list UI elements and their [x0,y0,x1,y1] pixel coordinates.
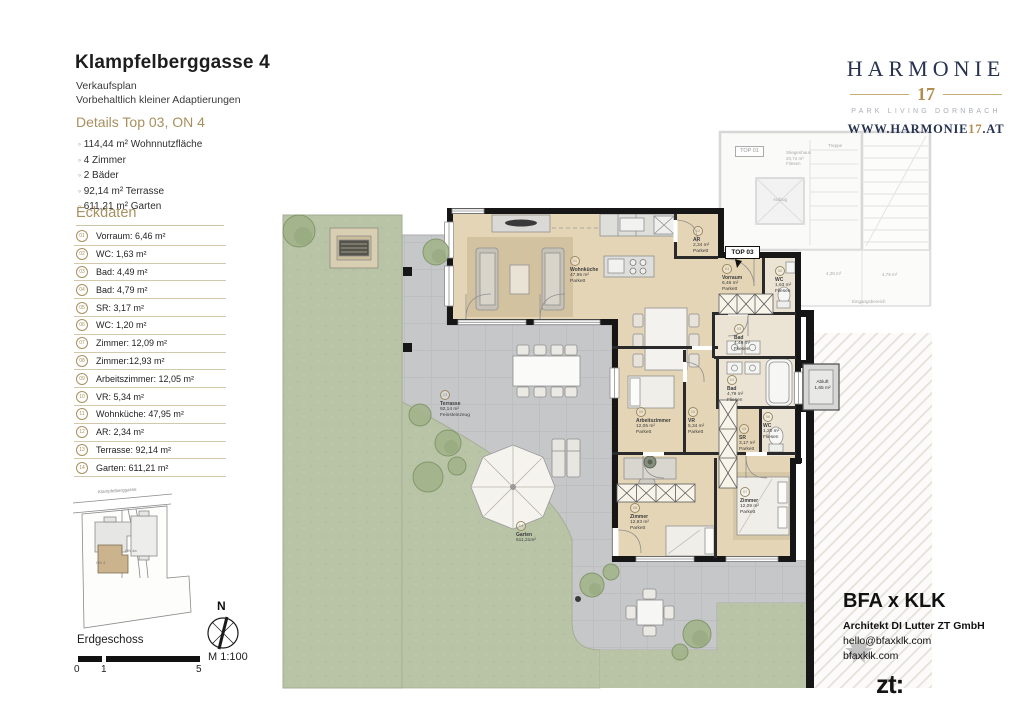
room-number-badge: 11 [570,256,580,266]
website-number: 17 [968,122,982,136]
eckdaten-label: Bad: 4,49 m² [96,267,148,277]
website-prefix: WWW.HARMONIE [848,122,969,136]
room-label-garten: 14 Garten 611,21m² [516,521,562,544]
room-floor: Parkett [693,249,739,255]
room-number-badge: 05 [76,302,88,314]
room-number-badge: 03 [76,266,88,278]
room-number-badge: 07 [76,337,88,349]
room-floor: Feinsteinzeug [440,413,486,419]
room-number-badge: 07 [740,487,750,497]
eckdaten-label: Arbeitszimmer: 12,05 m² [96,374,194,384]
room-number-badge: 06 [76,319,88,331]
room-label-wohnkueche: 11 Wohnküche 47,95 m² Parkett [570,256,616,285]
room-floor: Parkett [636,430,682,436]
eckdaten-label: SR: 3,17 m² [96,303,144,313]
stiegenhaus-floor: Fliesen [786,161,826,167]
aufzug-label: Aufzug [767,197,793,203]
room-number-badge: 05 [739,424,749,434]
eckdaten-label: Terrasse: 92,14 m² [96,445,171,455]
room-number-badge: 04 [76,284,88,296]
room-number-badge: 01 [722,264,732,274]
abluft-area: 1,65 m² [806,386,839,392]
room-number-badge: 01 [76,230,88,242]
architect-firm: Architekt DI Lutter ZT GmbH [843,620,1021,632]
architect-block: BFA x KLK Architekt DI Lutter ZT GmbH he… [843,590,1021,700]
details-item: 92,14 m² Terrasse [78,184,202,200]
brand-logo: HARMONIE 17 PARK LIVING DORNBACH WWW.HAR… [840,56,1012,137]
north-label: N [217,599,226,613]
gold-rule-left [850,94,909,95]
room-floor: Parkett [740,510,786,516]
details-list: 114,44 m² Wohnnutzfläche 4 Zimmer 2 Bäde… [78,137,202,215]
north-compass [208,617,238,649]
eckdaten-row: 10VR: 5,34 m² [74,388,226,406]
eckdaten-label: Wohnküche: 47,95 m² [96,409,184,419]
room-label-wc1: 02 WC 1,63 m² Fliesen [775,266,821,295]
room-number-badge: 06 [763,412,773,422]
room-floor: Fliesen [734,347,780,353]
brand-number: 17 [917,84,935,105]
room-label-zimmer1: 07 Zimmer 12,09 m² Parkett [740,487,786,516]
eckdaten-row: 01Vorraum: 6,46 m² [74,228,226,246]
room-floor: Fliesen [763,435,809,441]
verkaufsplan-page: Klampfelberggasse 4 Verkaufsplan Vorbeha… [0,0,1024,724]
room-area: 611,21m² [516,538,562,544]
brand-number-row: 17 [840,84,1012,105]
architect-name: BFA x KLK [843,590,1021,613]
scale-mark-0: 0 [74,664,80,675]
eckdaten-label: WC: 1,20 m² [96,320,147,330]
eckdaten-row: 11Wohnküche: 47,95 m² [74,406,226,424]
room-number-badge: 13 [76,444,88,456]
building-label-on4: ON 4 [96,560,105,565]
room-label-arbeitszimmer: 09 Arbeitszimmer 12,05 m² Parkett [636,407,682,436]
eckdaten-row: 13Terrasse: 92,14 m² [74,442,226,460]
eckdaten-label: VR: 5,34 m² [96,392,144,402]
room-number-badge: 03 [734,324,744,334]
eckdaten-label: Zimmer:12,93 m² [96,356,165,366]
brand-website: WWW.HARMONIE17.AT [840,122,1012,137]
room-number-badge: 11 [76,408,88,420]
stiegenhaus-label: Stiegenhaus 20,74 m² Fliesen [786,150,826,167]
room-label-zimmer2: 08 Zimmer 12,93 m² Parkett [630,503,676,532]
eckdaten-row: 03Bad: 4,49 m² [74,264,226,282]
architect-email: hello@bfaxklk.com [843,635,1021,647]
eckdaten-row: 02WC: 1,63 m² [74,246,226,264]
eckdaten-label: Bad: 4,79 m² [96,285,148,295]
eckdaten-row: 08Zimmer:12,93 m² [74,353,226,371]
room-label-vr: 10 VR 5,34 m² Parkett [688,407,734,436]
eckdaten-label: Vorraum: 6,46 m² [96,231,166,241]
room-floor: Parkett [570,279,616,285]
plan-type-label: Verkaufsplan [76,80,137,92]
room-floor: Fliesen [727,398,773,404]
eckdaten-heading: Eckdaten [76,205,224,226]
floor-level-label: Erdgeschoss [77,634,143,646]
treppe-label: Treppe [828,143,842,149]
eckdaten-row: 07Zimmer: 12,09 m² [74,335,226,353]
building-label-on4a: ON 4a [125,548,137,553]
eingangsbereich-label: Eingangsbereich [852,299,912,305]
room-number-badge: 10 [688,407,698,417]
room-number-badge: 14 [76,462,88,474]
website-suffix: .AT [982,122,1004,136]
eckdaten-row: 04Bad: 4,79 m² [74,281,226,299]
eckdaten-list: 01Vorraum: 6,46 m² 02WC: 1,63 m² 03Bad: … [74,228,226,477]
neighbor-area-b: 4,79 m² [882,272,897,278]
room-number-badge: 10 [76,391,88,403]
unit-tag-top01: TOP 01 [735,146,764,157]
room-number-badge: 14 [516,521,526,531]
room-label-bad2: 04 Bad 4,79 m² Fliesen [727,375,773,404]
room-number-badge: 13 [440,390,450,400]
room-floor: Parkett [722,287,768,293]
architect-website: bfaxklk.com [843,650,1021,662]
room-number-badge: 12 [693,226,703,236]
scale-bar [78,656,200,662]
room-number-badge: 09 [636,407,646,417]
zt-logo: zt: [876,669,903,700]
eckdaten-label: Zimmer: 12,09 m² [96,338,167,348]
room-floor: Parkett [630,526,676,532]
details-item: 4 Zimmer [78,153,202,169]
room-label-ar: 12 AR 2,34 m² Parkett [693,226,739,255]
room-label-bad1: 03 Bad 4,49 m² Fliesen [734,324,780,353]
room-label-vorraum: 01 Vorraum 6,46 m² Parkett [722,264,768,293]
disclaimer-label: Vorbehaltlich kleiner Adaptierungen [76,94,241,106]
eckdaten-row: 06WC: 1,20 m² [74,317,226,335]
zt-logo-row: zt: [843,669,1021,700]
room-floor: Parkett [739,447,785,453]
room-number-badge: 08 [76,355,88,367]
details-item: 114,44 m² Wohnnutzfläche [78,137,202,153]
room-number-badge: 09 [76,373,88,385]
room-number-badge: 02 [76,248,88,260]
eckdaten-row: 14Garten: 611,21 m² [74,459,226,477]
abluft-label: Abluft 1,65 m² [806,380,839,392]
room-number-badge: 12 [76,426,88,438]
details-item: 2 Bäder [78,168,202,184]
neighbor-area-a: 4,28 m² [826,271,841,277]
page-title: Klampfelberggasse 4 [75,52,270,74]
room-number-badge: 02 [775,266,785,276]
brand-name: HARMONIE [840,56,1012,82]
eckdaten-label: Garten: 611,21 m² [96,463,168,473]
eckdaten-row: 09Arbeitszimmer: 12,05 m² [74,370,226,388]
gold-rule-right [943,94,1002,95]
scale-mark-5: 5 [196,664,202,675]
room-number-badge: 04 [727,375,737,385]
room-number-badge: 08 [630,503,640,513]
eckdaten-row: 12AR: 2,34 m² [74,424,226,442]
site-sketch [73,494,191,628]
room-floor: Fliesen [775,289,821,295]
details-heading: Details Top 03, ON 4 [76,114,205,130]
brand-tagline: PARK LIVING DORNBACH [840,108,1012,115]
eckdaten-row: 05SR: 3,17 m² [74,299,226,317]
eckdaten-label: WC: 1,63 m² [96,249,147,259]
room-floor: Parkett [688,430,734,436]
eckdaten-label: AR: 2,34 m² [96,427,144,437]
room-label-terrasse: 13 Terrasse 92,14 m² Feinsteinzeug [440,390,486,419]
scale-ratio-label: M 1:100 [208,651,248,663]
room-label-wc2: 06 WC 1,20 m² Fliesen [763,412,809,441]
scale-mark-1: 1 [101,664,107,675]
